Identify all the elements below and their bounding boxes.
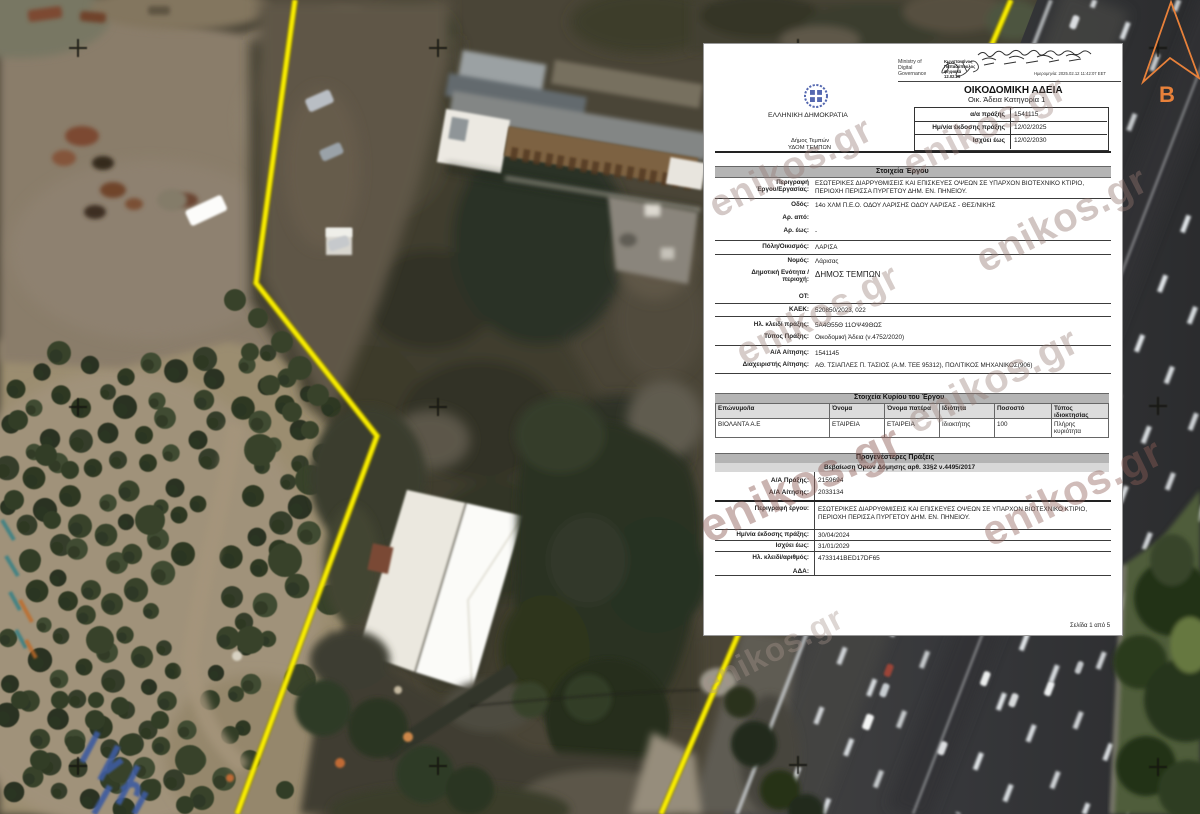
svg-text:B: B bbox=[1159, 82, 1175, 107]
